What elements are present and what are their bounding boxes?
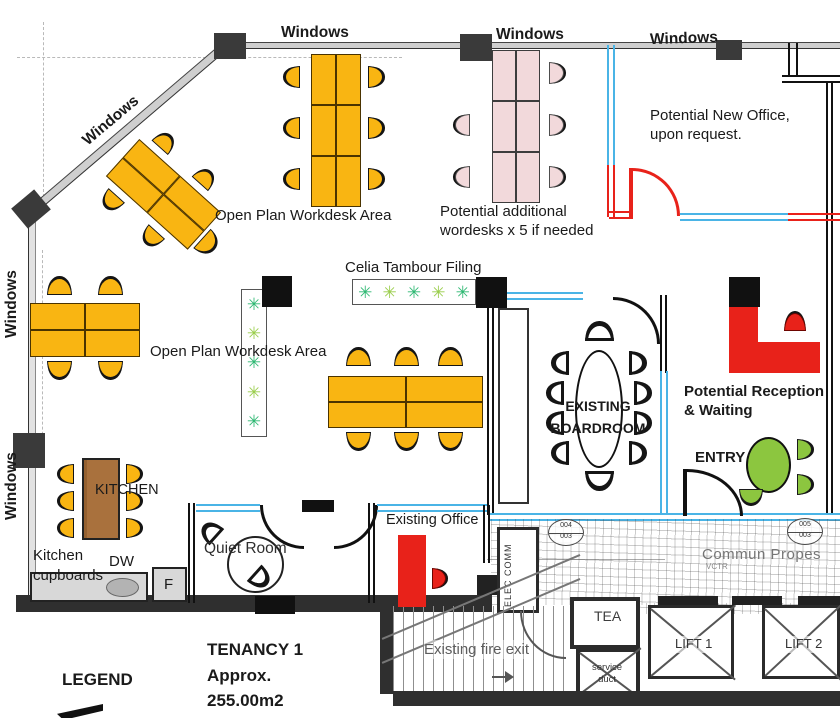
entry-label: ENTRY [695,448,745,467]
desk [311,156,336,207]
desk [311,54,336,105]
partition-red [788,213,840,221]
potential-new-office-label: Potential New Office, upon request. [650,106,790,144]
windows-label-top: Windows [496,25,564,45]
boardroom-credenza [498,308,529,504]
column [460,34,492,61]
wall [368,503,375,603]
open-plan-label-2: Open Plan Workdesk Area [150,342,326,361]
chair-icon [99,188,125,214]
chair-icon [438,432,463,449]
office-desk [398,535,426,607]
chair-icon [585,471,614,489]
chair-icon [797,439,812,460]
windows-label-left: Windows [2,262,22,338]
chair-icon [98,278,123,295]
open-plan-label-1: Open Plan Workdesk Area [215,206,391,225]
chair-icon [394,432,419,449]
partition-blue [660,371,668,513]
chair-icon [139,224,165,250]
door-post [302,500,334,512]
chair-icon [47,361,72,378]
boardroom-label: EXISTING BOARDROOM [533,396,663,439]
chair-icon [346,432,371,449]
partition-blue [497,292,583,300]
wall-stair-left [380,612,393,694]
wall-line [796,43,798,77]
windows-label-left: Windows [2,444,22,520]
column [729,277,760,307]
lintel [732,596,782,605]
planter-box: ✳ ✳ ✳ ✳ ✳ [352,279,476,305]
wall [188,503,195,603]
chair-icon [553,441,569,465]
plant-icon: ✳ [247,325,261,342]
entry-door-arc [687,469,743,516]
desk-potential [492,152,516,203]
door-arc [613,297,660,344]
door-tag: 005 003 [787,518,823,545]
stair-arrow [492,676,506,678]
elec-comm-label: ELEC COMM [503,537,515,607]
fire-exit-label: Existing fire exit [424,640,529,659]
chair-icon [368,117,383,139]
sink-icon [106,578,139,597]
desk [406,376,483,402]
chair-icon [98,361,123,378]
door-tag: 004 003 [548,519,584,546]
desk [406,402,483,428]
kitchen-cupboards-label: Kitchen cupboards [33,546,103,585]
grid-dash-line [43,22,44,197]
planter-box: ✳ ✳ ✳ ✳ ✳ [241,289,267,437]
chair-icon [285,168,300,190]
potential-additional-label: Potential additional wordesks x 5 if nee… [440,202,593,240]
reception-desk [757,342,820,373]
chair-icon [59,518,74,538]
partition-blue [196,504,260,512]
wall [483,505,490,563]
chair-icon [629,351,645,375]
tea-label: TEA [594,608,621,626]
kitchen-label: KITCHEN [95,481,159,500]
chair-icon [797,474,812,495]
chair-icon [126,518,141,538]
column [716,40,742,60]
desk [85,303,140,330]
chair-icon [585,323,614,341]
desk-potential [516,101,540,152]
quiet-room-label: Quiet Room [204,539,287,559]
chair-icon [59,491,74,511]
chair-icon [739,489,763,504]
wall-right [826,81,833,514]
chair-icon [59,464,74,484]
lintel [658,596,718,605]
chair-icon [784,313,806,331]
lift-2-label: LIFT 2 [785,636,822,653]
waiting-table [746,437,791,493]
door-tag-top: 005 [788,520,822,531]
plant-icon: ✳ [247,384,261,401]
legend-title: LEGEND [62,669,133,691]
wall-boardroom-right [660,295,667,373]
dishwasher-label: DW [109,552,134,571]
service-duct-label: serviceduct [592,662,622,686]
column [255,596,295,614]
lift-2: LIFT 2 [762,605,840,679]
reception-label: Potential Reception & Waiting [684,382,824,420]
reception-desk [729,307,758,373]
celia-filing-label: Celia Tambour Filing [345,258,481,277]
chair-icon [47,278,72,295]
chair-icon [629,441,645,465]
chair-icon [438,349,463,366]
chair-icon [368,168,383,190]
wall-boardroom-left [487,295,494,515]
desk-potential [516,152,540,203]
wall-line [782,75,840,77]
common-property-sub-label: VCTR [706,562,728,572]
desk [311,105,336,156]
desk [30,330,85,357]
lintel [798,596,840,605]
desk [336,105,361,156]
partition-red [607,165,615,217]
fridge-label: F [164,575,173,594]
partition-blue [680,213,788,221]
chair-icon [151,129,177,155]
stair-arrow-head [505,671,514,683]
desk-potential [492,101,516,152]
floor-plan: ELEC COMM TEA serviceduct LIFT 1 LIFT 2 … [0,0,840,718]
lift-1-label: LIFT 1 [675,636,712,653]
tenancy-summary: TENANCY 1 Approx. 255.00m2 [207,637,303,714]
chair-icon [432,568,446,589]
plant-icon: ✳ [247,413,261,430]
plant-icon: ✳ [247,296,261,313]
chair-icon [285,117,300,139]
desk [85,330,140,357]
windows-label-top: Windows [650,28,719,50]
chair-icon [549,114,564,136]
wall-line [788,43,790,77]
desk [328,376,406,402]
chair-icon [549,62,564,84]
chair-icon [455,114,470,136]
windows-label-top: Windows [281,23,349,43]
existing-office-label: Existing Office [386,511,478,530]
lift-1: LIFT 1 [648,605,734,679]
door-tag-top: 004 [549,521,583,532]
wall-bottom-common [393,691,840,706]
plant-icon: ✳ [358,284,372,301]
plant-icon: ✳ [407,284,421,301]
chair-icon [549,166,564,188]
desk-potential [492,50,516,101]
door-arc-red [632,168,680,216]
chair-icon [553,351,569,375]
desk [328,402,406,428]
plant-icon: ✳ [382,284,396,301]
desk-potential [516,50,540,101]
chair-icon [285,66,300,88]
column [262,276,292,307]
desk [30,303,85,330]
partition-red [609,211,633,219]
chair-icon [192,165,218,191]
legend-symbol-partial [57,704,103,718]
plant-icon: ✳ [456,284,470,301]
column [476,277,507,308]
partition-blue [607,45,615,165]
plant-icon: ✳ [431,284,445,301]
chair-icon [455,166,470,188]
column [214,33,246,59]
desk [336,54,361,105]
chair-icon [346,349,371,366]
desk [336,156,361,207]
chair-icon [394,349,419,366]
chair-icon [368,66,383,88]
